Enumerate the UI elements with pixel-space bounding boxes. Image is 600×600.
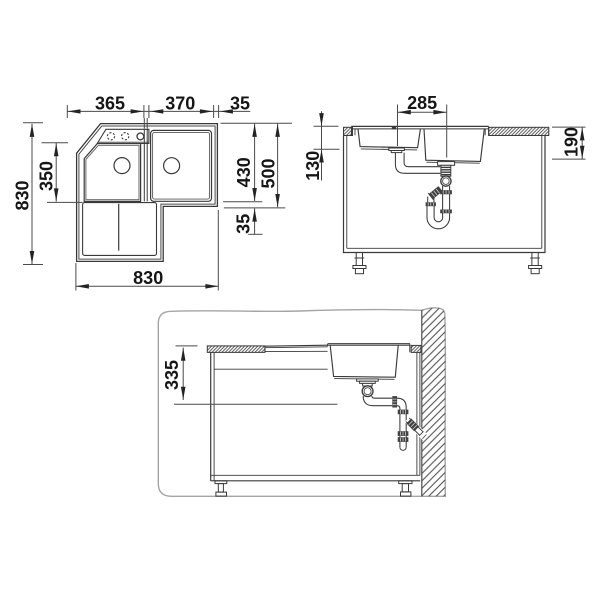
svg-text:35: 35 (230, 93, 250, 113)
svg-text:350: 350 (36, 161, 56, 191)
svg-text:430: 430 (234, 157, 254, 187)
svg-text:335: 335 (162, 360, 182, 390)
svg-text:830: 830 (12, 180, 32, 210)
svg-text:285: 285 (407, 93, 437, 113)
svg-text:35: 35 (233, 214, 253, 234)
svg-text:500: 500 (258, 158, 278, 188)
svg-text:370: 370 (165, 93, 195, 113)
svg-text:190: 190 (562, 127, 582, 157)
svg-text:830: 830 (133, 268, 163, 288)
svg-text:130: 130 (303, 151, 323, 181)
svg-text:365: 365 (95, 93, 125, 113)
